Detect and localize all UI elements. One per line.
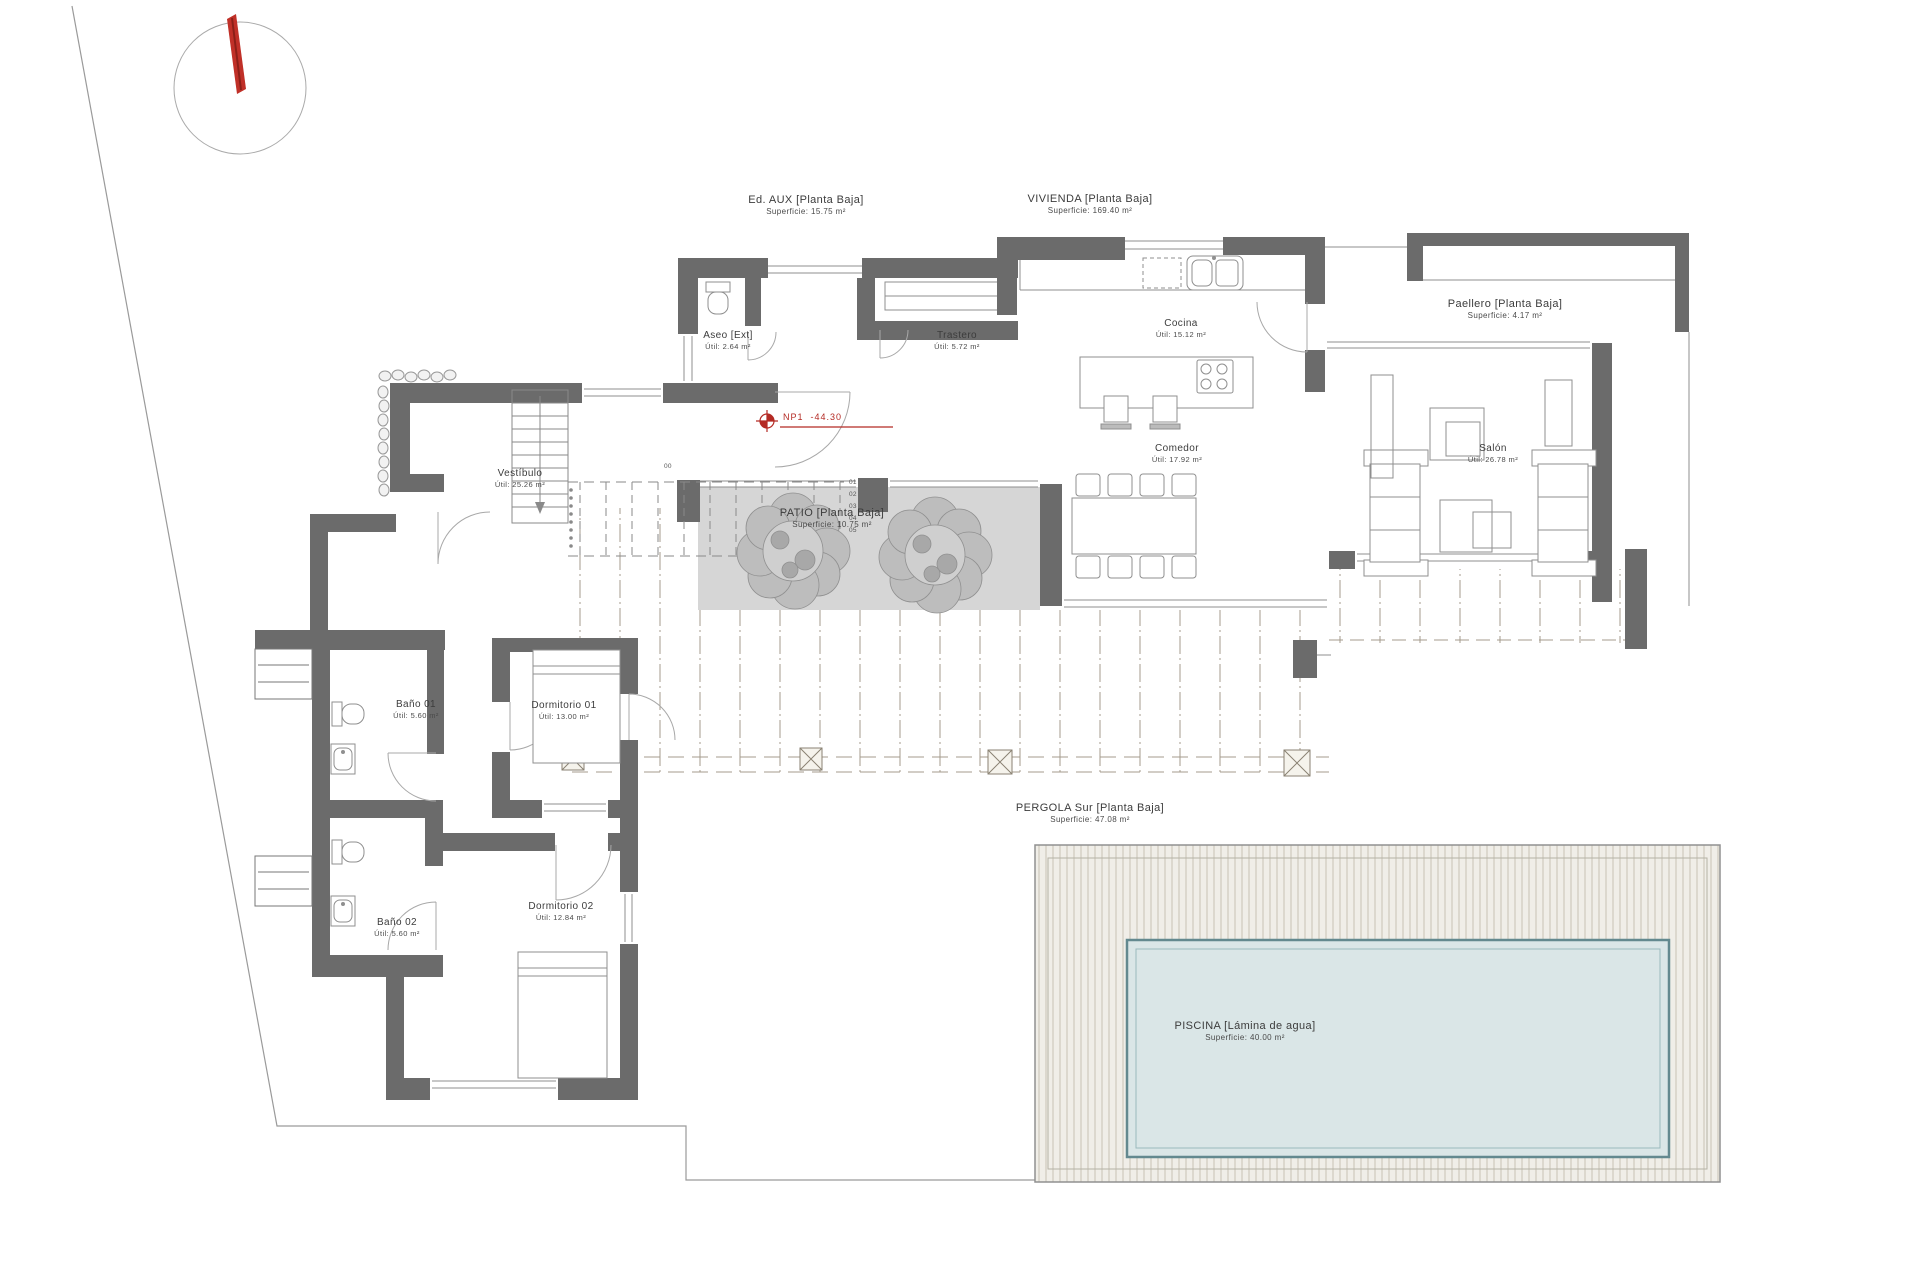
toilet-bano-02 bbox=[332, 840, 364, 864]
lightwell-boxes bbox=[255, 649, 312, 906]
benchmark-marker bbox=[756, 410, 893, 432]
bed-dormitorio-01 bbox=[533, 650, 620, 763]
sink-bano-01 bbox=[331, 744, 355, 774]
coffee-table bbox=[1440, 500, 1492, 552]
console-table bbox=[1545, 380, 1572, 446]
kitchen-sink bbox=[1187, 256, 1243, 290]
swimming-pool bbox=[1127, 940, 1669, 1157]
sofa-right bbox=[1532, 450, 1596, 576]
aseo-toilet bbox=[706, 282, 730, 314]
armchair bbox=[1430, 408, 1484, 460]
pool-area bbox=[1035, 845, 1720, 1182]
north-arrow bbox=[174, 14, 306, 154]
bed-dormitorio-02 bbox=[518, 952, 607, 1078]
dining-table bbox=[1072, 474, 1196, 578]
floor-plan-drawing bbox=[0, 0, 1920, 1280]
appliance-outline bbox=[1143, 258, 1181, 288]
sofa-left bbox=[1364, 450, 1428, 576]
sink-bano-02 bbox=[331, 896, 355, 926]
floor-plan-canvas: NP1 -44.30 Ed. AUX [Planta Baja]Superfic… bbox=[0, 0, 1920, 1280]
cooktop bbox=[1197, 360, 1233, 393]
toilet-bano-01 bbox=[332, 702, 364, 726]
